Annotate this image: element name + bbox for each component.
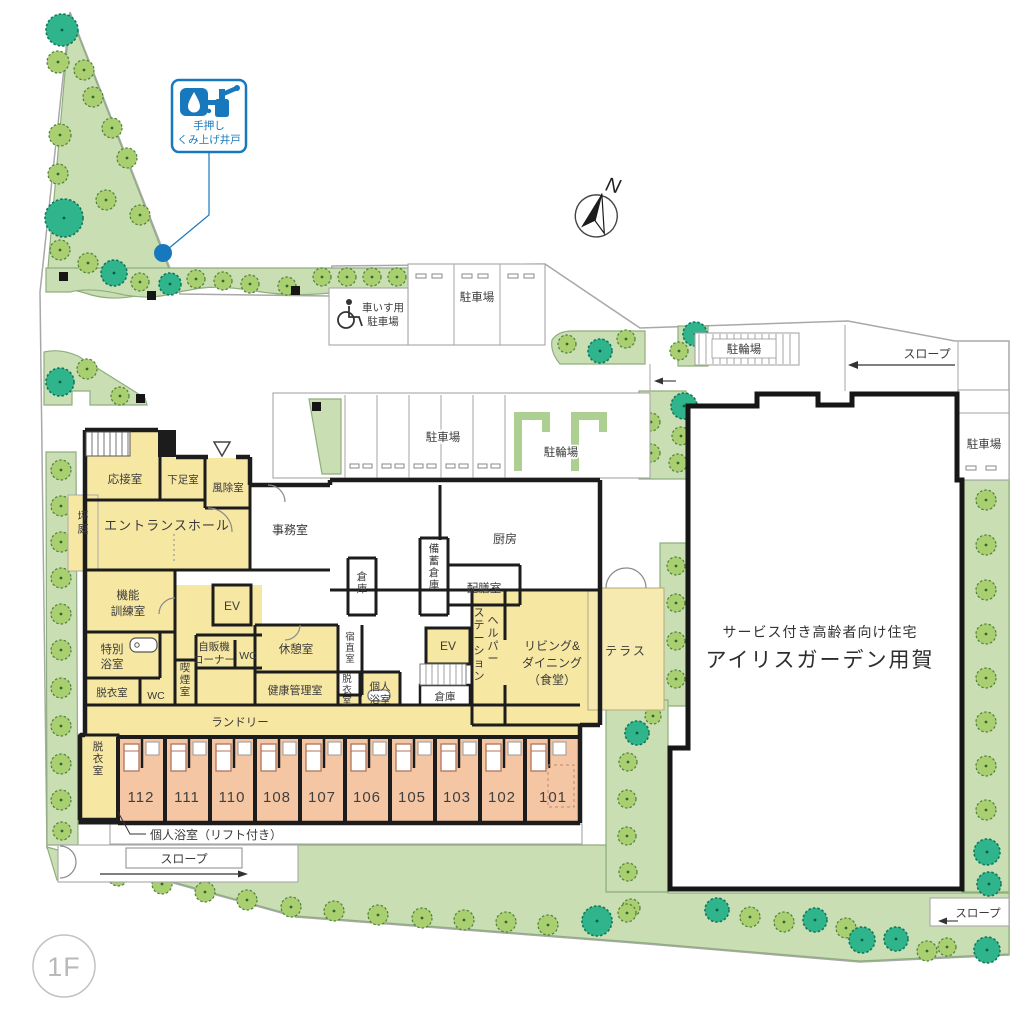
- bed-icon: [261, 744, 276, 771]
- rest-room-label: 休憩室: [279, 642, 314, 656]
- bed-icon: [216, 744, 231, 771]
- parking-stall-dash: [966, 466, 976, 470]
- tree-center-dot: [169, 283, 172, 286]
- compass: N: [571, 168, 627, 241]
- tree-center-dot: [636, 732, 639, 735]
- tree-center-dot: [678, 350, 681, 353]
- training-label-2: 訓練室: [111, 604, 146, 618]
- parking-stall-dash: [414, 464, 423, 468]
- special-bath-label-2: 浴室: [101, 657, 124, 671]
- parking-mid-label: 駐車場: [426, 430, 461, 444]
- tree-center-dot: [59, 381, 62, 384]
- vending-label-2: コーナー: [193, 654, 235, 666]
- stock-storage-label: 備蓄倉庫: [429, 542, 440, 591]
- existing-building-name: アイリスガーデン用賀: [706, 649, 935, 672]
- living-dining-label-1: リビング&: [524, 639, 580, 653]
- tree-center-dot: [290, 906, 293, 909]
- tree-center-dot: [985, 633, 988, 636]
- room-number: 107: [308, 789, 336, 806]
- kitchen-label: 厨房: [493, 531, 517, 546]
- toilet-unit-icon: [146, 742, 159, 755]
- toilet-unit-icon: [418, 742, 431, 755]
- wc-mid-label: WC: [239, 650, 257, 662]
- slope-left-label: スロープ: [160, 852, 207, 866]
- helper-station-label-2: ステーション: [474, 607, 485, 682]
- storage-mid-label: 倉庫: [435, 690, 456, 703]
- health-office-label: 健康管理室: [268, 683, 323, 697]
- tree-center-dot: [599, 350, 602, 353]
- toilet-unit-icon: [328, 742, 341, 755]
- tree-center-dot: [985, 677, 988, 680]
- tree-center-dot: [139, 281, 142, 284]
- tree-center-dot: [105, 199, 108, 202]
- tree-center-dot: [814, 919, 817, 922]
- tree-center-dot: [60, 541, 63, 544]
- parking-stall-dash: [363, 464, 372, 468]
- well-sign-line2: くみ上げ井戸: [177, 133, 240, 146]
- parking-stall-dash: [491, 464, 500, 468]
- parking-stall-dash: [432, 274, 442, 278]
- tree-center-dot: [677, 462, 680, 465]
- tree-center-dot: [60, 725, 63, 728]
- wc-left-label: WC: [147, 690, 165, 702]
- room-number: 110: [219, 789, 246, 806]
- tree-center-dot: [985, 765, 988, 768]
- tree-center-dot: [845, 927, 848, 930]
- tree-center-dot: [161, 883, 164, 886]
- undress-left-label: 脱衣室: [96, 686, 128, 699]
- tree-center-dot: [87, 262, 90, 265]
- parking-stall-dash: [446, 464, 455, 468]
- room-number: 112: [128, 789, 155, 806]
- tree-center-dot: [985, 544, 988, 547]
- tree-center-dot: [119, 395, 122, 398]
- tree-center-dot: [988, 883, 991, 886]
- tree-center-dot: [333, 910, 336, 913]
- room-number: 103: [443, 789, 471, 806]
- parking-stall-dash: [986, 466, 996, 470]
- tree-center-dot: [111, 127, 114, 130]
- slope-bottom-right: スロープ: [930, 898, 1009, 926]
- room-number: 108: [263, 789, 291, 806]
- tree-center-dot: [222, 280, 225, 283]
- existing-building: サービス付き高齢者向け住宅 アイリスガーデン用賀: [670, 394, 962, 889]
- floor-badge: 1F: [33, 935, 95, 997]
- tree-center-dot: [321, 276, 324, 279]
- tree-center-dot: [626, 835, 629, 838]
- tree-center-dot: [92, 96, 95, 99]
- tree-center-dot: [627, 761, 630, 764]
- tree-center-dot: [986, 949, 989, 952]
- private-bath-label-1: 個人: [370, 680, 391, 693]
- ev-right-label: EV: [440, 639, 456, 653]
- toilet-unit-icon: [238, 742, 251, 755]
- tree-center-dot: [57, 61, 60, 64]
- special-bath-label-1: 特別: [101, 642, 124, 656]
- bed-icon: [531, 744, 546, 771]
- tree-center-dot: [61, 29, 64, 32]
- tree-center-dot: [421, 917, 424, 920]
- tree-center-dot: [985, 809, 988, 812]
- well-sign-line1: 手押し: [193, 119, 225, 132]
- tree-center-dot: [396, 276, 399, 279]
- bed-icon: [124, 744, 139, 771]
- tree-center-dot: [60, 687, 63, 690]
- tree-center-dot: [463, 919, 466, 922]
- tree-center-dot: [377, 914, 380, 917]
- floor-plan-canvas: 駐車場 車いす用 駐車場 駐車場 駐輪場 駐輪場: [0, 0, 1024, 1009]
- private-bath-lift-label: 個人浴室（リフト付き）: [150, 827, 282, 842]
- living-dining-label-3: （食堂）: [528, 672, 576, 687]
- tree-center-dot: [60, 577, 63, 580]
- toilet-unit-icon: [373, 742, 386, 755]
- tree-center-dot: [83, 69, 86, 72]
- tree-center-dot: [895, 938, 898, 941]
- floor-badge-label: 1F: [47, 952, 81, 982]
- entrance-hall-label: エントランスホール: [104, 518, 230, 533]
- parking-stall-dash: [478, 464, 487, 468]
- parking-stall-dash: [462, 274, 472, 278]
- room-number: 102: [488, 789, 516, 806]
- serving-label: 配膳室: [467, 581, 502, 595]
- wheelchair-parking: 車いす用 駐車場: [329, 288, 408, 345]
- bed-icon: [396, 744, 411, 771]
- private-bath-label-2: 浴室: [370, 693, 391, 706]
- existing-building-type: サービス付き高齢者向け住宅: [723, 624, 918, 640]
- tree-center-dot: [986, 851, 989, 854]
- slope-left: スロープ: [58, 845, 298, 882]
- windbreak-label: 風除室: [212, 481, 244, 494]
- room-number: 111: [174, 789, 200, 806]
- undress-units-label: 脱衣室: [93, 740, 104, 777]
- well-sign: 手押し くみ上げ井戸: [154, 80, 246, 262]
- tree-center-dot: [625, 338, 628, 341]
- bed-icon: [351, 744, 366, 771]
- parking-stall-dash: [395, 464, 404, 468]
- tsubo-garden-label: 坪庭: [78, 510, 89, 536]
- tree-center-dot: [675, 602, 678, 605]
- tree-center-dot: [626, 798, 629, 801]
- tree-center-dot: [286, 285, 289, 288]
- parking-stall-dash: [382, 464, 391, 468]
- tree-center-dot: [126, 157, 129, 160]
- tree-center-dot: [505, 921, 508, 924]
- training-label-1: 機能: [117, 588, 140, 602]
- tree-center-dot: [652, 715, 655, 718]
- tree-center-dot: [675, 565, 678, 568]
- tree-center-dot: [60, 613, 63, 616]
- bed-icon: [306, 744, 321, 771]
- room-number: 101: [539, 789, 567, 806]
- tree-center-dot: [249, 283, 252, 286]
- living-dining-label-2: ダイニング: [522, 655, 582, 670]
- bicycle-mid-label: 駐輪場: [544, 445, 579, 459]
- tree-center-dot: [61, 830, 64, 833]
- well-location-dot: [154, 244, 172, 262]
- tree-center-dot: [346, 276, 349, 279]
- room-number: 106: [353, 789, 381, 806]
- bed-icon: [441, 744, 456, 771]
- site-plan: 駐車場 車いす用 駐車場 駐車場 駐輪場 駐輪場: [0, 0, 1024, 1009]
- toilet-unit-icon: [193, 742, 206, 755]
- tree-center-dot: [596, 920, 599, 923]
- toilet-unit-icon: [553, 742, 566, 755]
- tree-center-dot: [246, 899, 249, 902]
- bed-icon: [171, 744, 186, 771]
- laundry-label: ランドリー: [211, 717, 269, 729]
- terrace-label: テラス: [605, 644, 647, 658]
- tree-center-dot: [86, 368, 89, 371]
- tree-center-dot: [716, 909, 719, 912]
- tree-center-dot: [60, 469, 63, 472]
- tree-center-dot: [195, 278, 198, 281]
- tree-center-dot: [204, 891, 207, 894]
- tree-center-dot: [60, 763, 63, 766]
- room-number: 105: [398, 789, 426, 806]
- tree-center-dot: [60, 505, 63, 508]
- tree-center-dot: [749, 916, 752, 919]
- ev-left-label: EV: [224, 599, 240, 613]
- bathtub-icon: [130, 638, 157, 652]
- tree-center-dot: [675, 640, 678, 643]
- toilet-unit-icon: [463, 742, 476, 755]
- parking-stall-dash: [459, 464, 468, 468]
- helper-station-label-1: ヘルパー: [488, 615, 499, 665]
- parking-stall-dash: [478, 274, 488, 278]
- bicycle-parking-top-right: 駐輪場: [695, 333, 799, 365]
- tree-center-dot: [861, 939, 864, 942]
- parking-stall-dash: [427, 464, 436, 468]
- tree-center-dot: [63, 217, 66, 220]
- tree-center-dot: [626, 912, 629, 915]
- tree-center-dot: [680, 435, 683, 438]
- storage-small-label: 倉庫: [357, 570, 368, 595]
- wheelchair-label-2: 駐車場: [367, 315, 399, 328]
- tree-center-dot: [985, 499, 988, 502]
- tree-center-dot: [139, 214, 142, 217]
- tree-center-dot: [683, 405, 686, 408]
- shoe-room-label: 下足室: [167, 473, 199, 486]
- tree-center-dot: [547, 924, 550, 927]
- tree-center-dot: [59, 249, 62, 252]
- tree-center-dot: [627, 871, 630, 874]
- tree-center-dot: [566, 343, 569, 346]
- tree-center-dot: [946, 946, 949, 949]
- tree-center-dot: [59, 134, 62, 137]
- tree-center-dot: [371, 276, 374, 279]
- tree-center-dot: [113, 272, 116, 275]
- parking-right-label: 駐車場: [967, 437, 1002, 451]
- tree-center-dot: [985, 589, 988, 592]
- slope-top-right-label: スロープ: [903, 347, 950, 361]
- tree-center-dot: [926, 950, 929, 953]
- parking-stall-dash: [524, 274, 534, 278]
- tree-center-dot: [60, 799, 63, 802]
- smoking-label: 喫煙室: [180, 662, 191, 698]
- vending-label-1: 自販機: [198, 640, 230, 653]
- undress-mid-label: 脱衣室: [342, 673, 352, 707]
- bicycle-top-right-label: 駐輪場: [727, 342, 762, 356]
- wheelchair-label-1: 車いす用: [362, 301, 404, 314]
- compass-north-label: N: [603, 174, 623, 199]
- tree-center-dot: [985, 721, 988, 724]
- toilet-unit-icon: [508, 742, 521, 755]
- toilet-unit-icon: [283, 742, 296, 755]
- night-duty-label: 宿直室: [345, 631, 355, 665]
- bed-icon: [486, 744, 501, 771]
- office-label: 事務室: [272, 522, 308, 537]
- parking-stall-dash: [416, 274, 426, 278]
- tree-center-dot: [60, 649, 63, 652]
- tree-center-dot: [783, 921, 786, 924]
- parking-stall-dash: [508, 274, 518, 278]
- tree-center-dot: [57, 173, 60, 176]
- slope-bottom-right-label: スロープ: [955, 907, 1001, 920]
- reception-label: 応接室: [108, 472, 143, 486]
- parking-top-label: 駐車場: [460, 290, 495, 304]
- tree-center-dot: [675, 678, 678, 681]
- parking-stall-dash: [350, 464, 359, 468]
